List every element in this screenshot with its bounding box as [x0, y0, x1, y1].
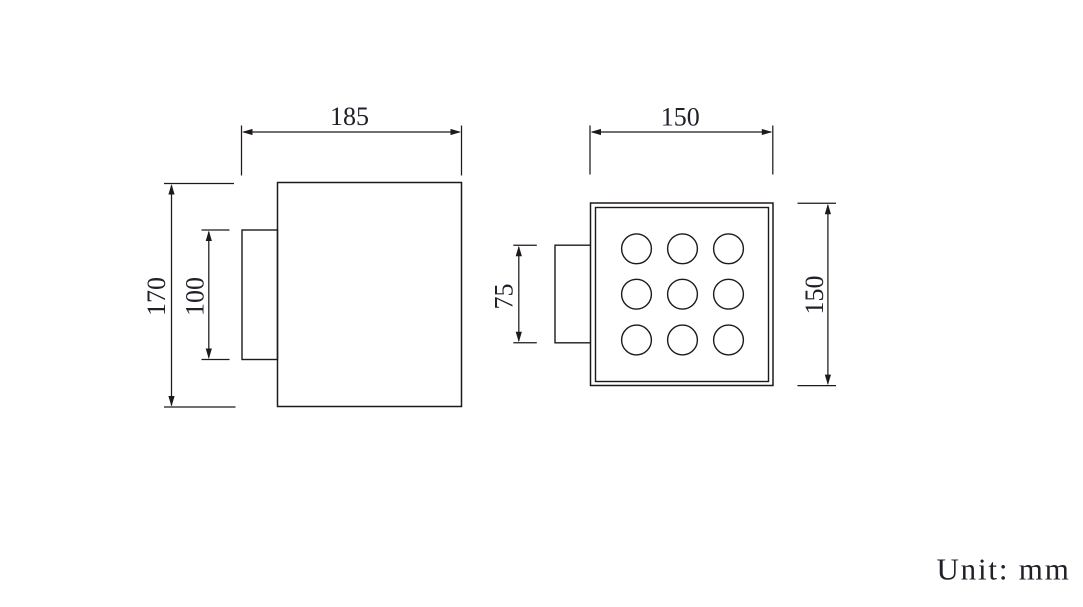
- svg-text:100: 100: [181, 277, 210, 316]
- svg-text:185: 185: [330, 102, 369, 131]
- svg-text:Unit: mm: Unit: mm: [937, 552, 1071, 587]
- svg-text:150: 150: [800, 276, 829, 315]
- svg-text:75: 75: [490, 284, 519, 310]
- svg-text:170: 170: [142, 277, 171, 316]
- svg-text:150: 150: [661, 103, 700, 132]
